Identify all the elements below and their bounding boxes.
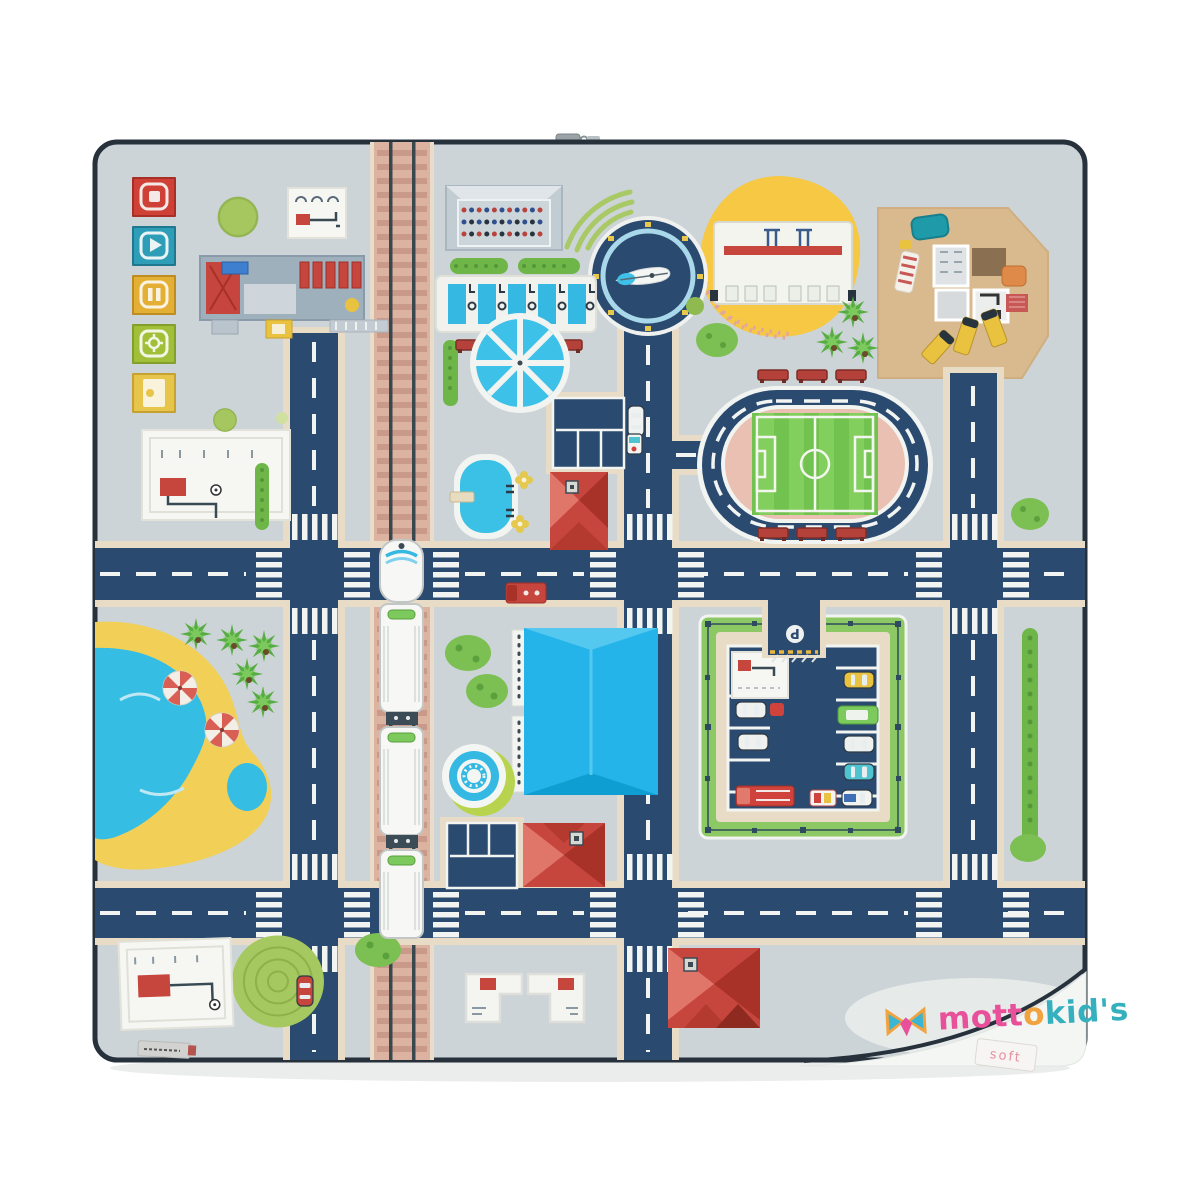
grandstand: [446, 186, 562, 250]
red-house-lower: [523, 823, 605, 887]
door-icon: [133, 374, 175, 412]
red-car: [297, 976, 313, 1006]
depot-dot: [345, 298, 359, 312]
playground-structure: [710, 222, 856, 304]
teal-sofa: [911, 214, 950, 241]
parking-sign-letter: P: [790, 625, 800, 640]
blue-bus: [222, 262, 248, 274]
tree: [219, 198, 257, 236]
shopping-mall: [512, 628, 658, 795]
pause-icon: [133, 276, 175, 314]
bush: [1011, 498, 1049, 530]
orange-couch: [1002, 266, 1026, 286]
small-bush: [276, 412, 288, 424]
red-house-mid: [550, 472, 608, 550]
sun-icon: [133, 325, 175, 363]
train-car: [380, 727, 423, 835]
beach-umbrella: [163, 671, 197, 705]
mat-artwork: P: [95, 142, 1105, 1062]
beach-umbrella: [205, 713, 239, 747]
stop-icon: [133, 178, 175, 216]
red-house-bottom: [668, 948, 760, 1028]
wordmark-part3: kid's: [1044, 992, 1130, 1032]
driveway-comb-lower: [447, 823, 517, 888]
tree: [214, 409, 236, 431]
playmat-product-photo: P: [0, 0, 1181, 1181]
train-car: [380, 850, 423, 938]
train-car: [380, 604, 423, 712]
wordmark-part2: o: [1022, 996, 1046, 1033]
white-car: [738, 734, 768, 750]
red-bus-fleet: [300, 262, 361, 288]
water-wheel-fountain: [470, 313, 570, 413]
brown-room: [972, 248, 1006, 276]
red-mini: [770, 703, 784, 716]
train-engine: [380, 540, 423, 602]
soccer-pitch: [752, 413, 878, 515]
van: [810, 790, 836, 806]
parking-office-card: [732, 652, 788, 698]
care-label-tag: [138, 1041, 197, 1059]
teal-car: [844, 764, 874, 780]
driveway-comb-upper: [553, 398, 624, 468]
room-grid: [934, 246, 968, 286]
media-icon-squares: [133, 178, 175, 412]
toy: [900, 240, 911, 249]
red-truck: [506, 583, 546, 603]
blueprint-card-bottomleft: [118, 934, 325, 1033]
play-icon: [133, 227, 175, 265]
white-car: [844, 736, 874, 752]
bush: [1010, 834, 1046, 862]
small-pool: [450, 454, 518, 539]
room-plain: [936, 290, 968, 320]
train-coupling: [386, 835, 418, 848]
small-tree: [686, 297, 704, 315]
bush: [696, 323, 738, 357]
diving-board: [450, 492, 474, 502]
blueprint-card-top: [288, 188, 346, 238]
train-coupling: [386, 712, 418, 725]
taxi: [844, 672, 874, 688]
white-van: [736, 702, 766, 718]
white-car-avenue: [628, 406, 644, 436]
swing-beam: [724, 246, 842, 255]
ice-cream-truck: [627, 434, 642, 454]
wordmark-part1: mott: [937, 997, 1024, 1037]
